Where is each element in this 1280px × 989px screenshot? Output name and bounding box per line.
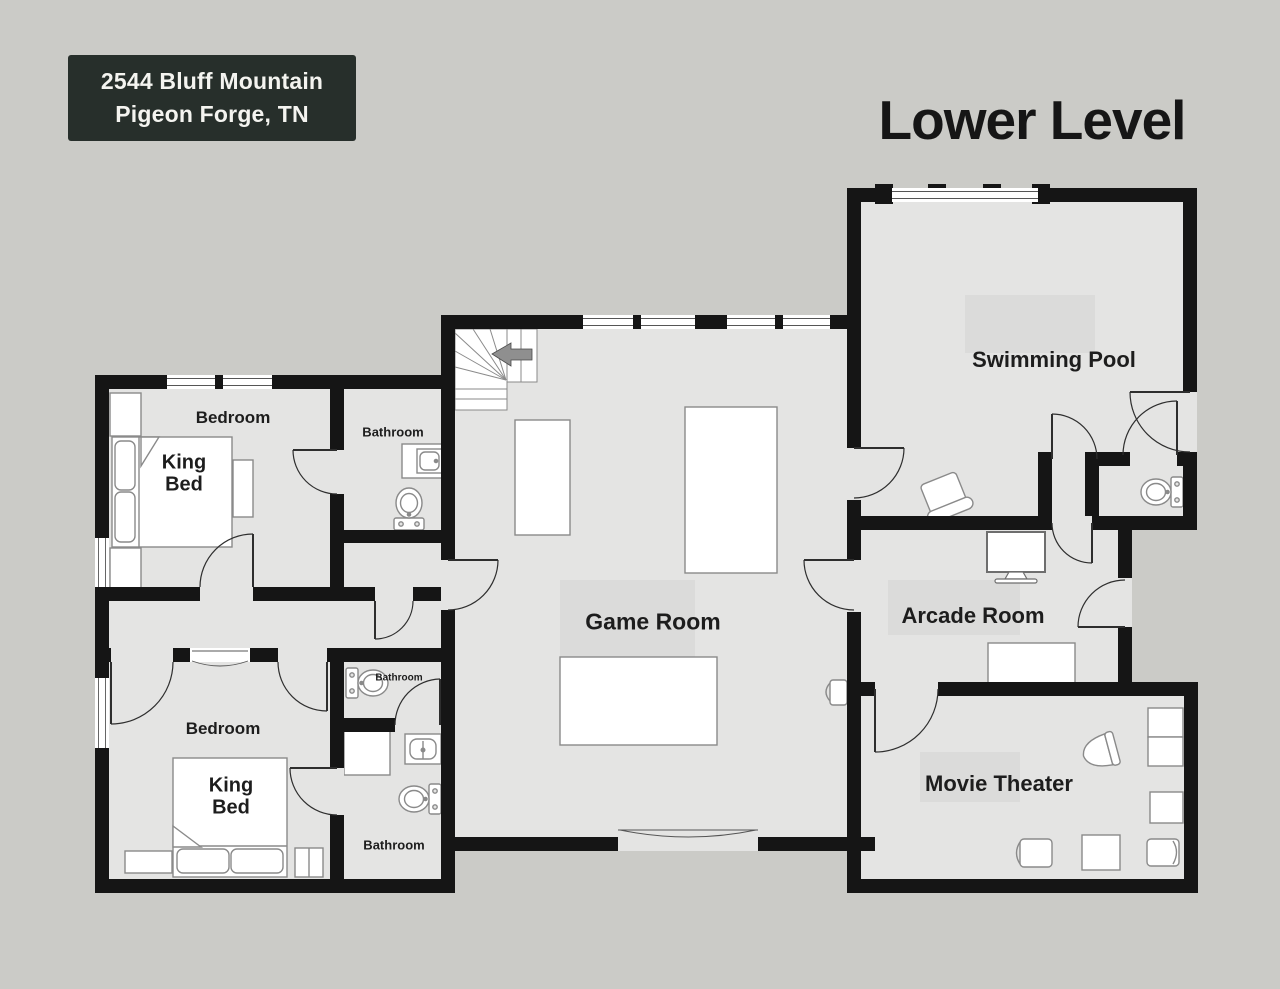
bench-icon xyxy=(233,460,253,517)
nightstand-icon xyxy=(110,393,141,436)
room-label-bedroom-1: Bedroom xyxy=(196,408,271,428)
room-label-arcade-room: Arcade Room xyxy=(901,603,1044,629)
floorplan-page: 2544 Bluff Mountain Pigeon Forge, TN Low… xyxy=(0,0,1280,989)
king-bed-1-label: King Bed xyxy=(162,452,206,497)
room-label-game-room: Game Room xyxy=(585,609,720,636)
game-table-icon xyxy=(560,657,717,745)
address-line1: 2544 Bluff Mountain xyxy=(101,65,323,98)
pillow-icon xyxy=(231,849,283,873)
toilet-icon xyxy=(1141,477,1183,507)
armchair-icon xyxy=(1147,839,1179,866)
pillow-icon xyxy=(115,441,135,490)
king-bed-2-label: King Bed xyxy=(209,775,253,820)
window-icon xyxy=(95,538,109,587)
room-label-swimming-pool: Swimming Pool xyxy=(972,347,1136,373)
address-line2: Pigeon Forge, TN xyxy=(115,98,309,131)
window-icon xyxy=(95,678,109,748)
rug-swimming-pool xyxy=(965,295,1095,353)
sofa-icon xyxy=(1148,708,1183,737)
pillow-icon xyxy=(115,492,135,542)
window-icon xyxy=(892,188,1038,202)
room-label-movie-theater: Movie Theater xyxy=(925,771,1073,797)
sofa-icon xyxy=(1148,737,1183,766)
dresser-icon xyxy=(125,851,172,873)
room-label-bathroom-1: Bathroom xyxy=(362,425,423,440)
armchair-icon xyxy=(1017,839,1053,867)
pool-table-icon xyxy=(685,407,777,573)
pool-bathroom-fixtures xyxy=(1141,477,1183,507)
page-title: Lower Level xyxy=(856,88,1208,152)
window-icon xyxy=(190,648,250,662)
room-label-bedroom-2: Bedroom xyxy=(186,719,261,739)
sofa-icon xyxy=(1150,792,1183,823)
shower-icon xyxy=(344,727,390,775)
game-table-icon xyxy=(515,420,570,535)
address-badge: 2544 Bluff Mountain Pigeon Forge, TN xyxy=(68,55,356,141)
pillow-icon xyxy=(177,849,229,873)
toilet-icon xyxy=(394,488,424,530)
room-label-bathroom-2: Bathroom xyxy=(375,673,422,684)
nightstand-icon xyxy=(110,548,141,591)
arcade-table-icon xyxy=(988,643,1075,683)
room-label-bathroom-3: Bathroom xyxy=(363,838,424,853)
ottoman-icon xyxy=(1082,835,1120,870)
toilet-icon xyxy=(399,784,441,814)
